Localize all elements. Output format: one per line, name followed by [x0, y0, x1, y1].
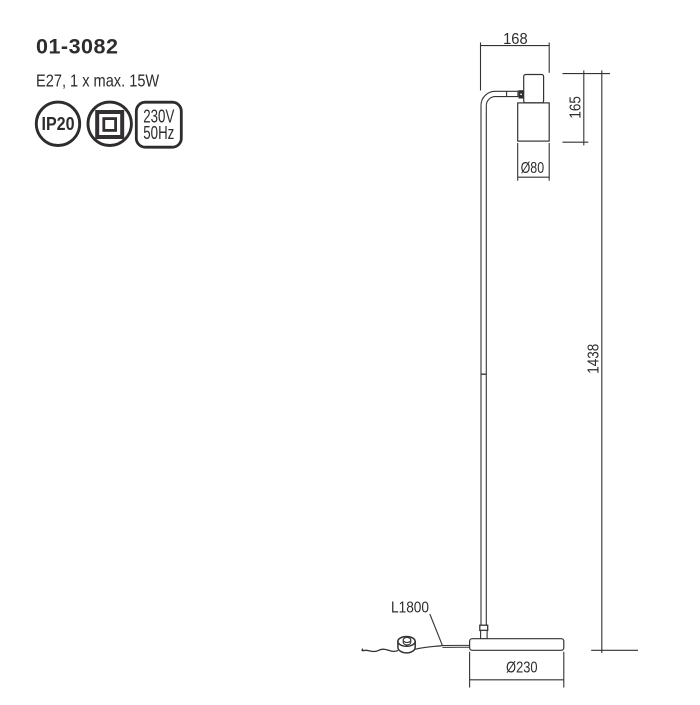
svg-text:IP20: IP20 — [42, 114, 75, 134]
svg-text:E27, 1 x max. 15W: E27, 1 x max. 15W — [36, 70, 160, 90]
svg-text:50Hz: 50Hz — [143, 123, 174, 143]
svg-text:1438: 1438 — [586, 344, 603, 374]
svg-text:01-3082: 01-3082 — [36, 35, 118, 59]
svg-text:L1800: L1800 — [391, 599, 429, 616]
svg-text:Ø230: Ø230 — [506, 660, 538, 677]
svg-text:165: 165 — [568, 96, 585, 119]
svg-text:Ø80: Ø80 — [521, 160, 545, 177]
